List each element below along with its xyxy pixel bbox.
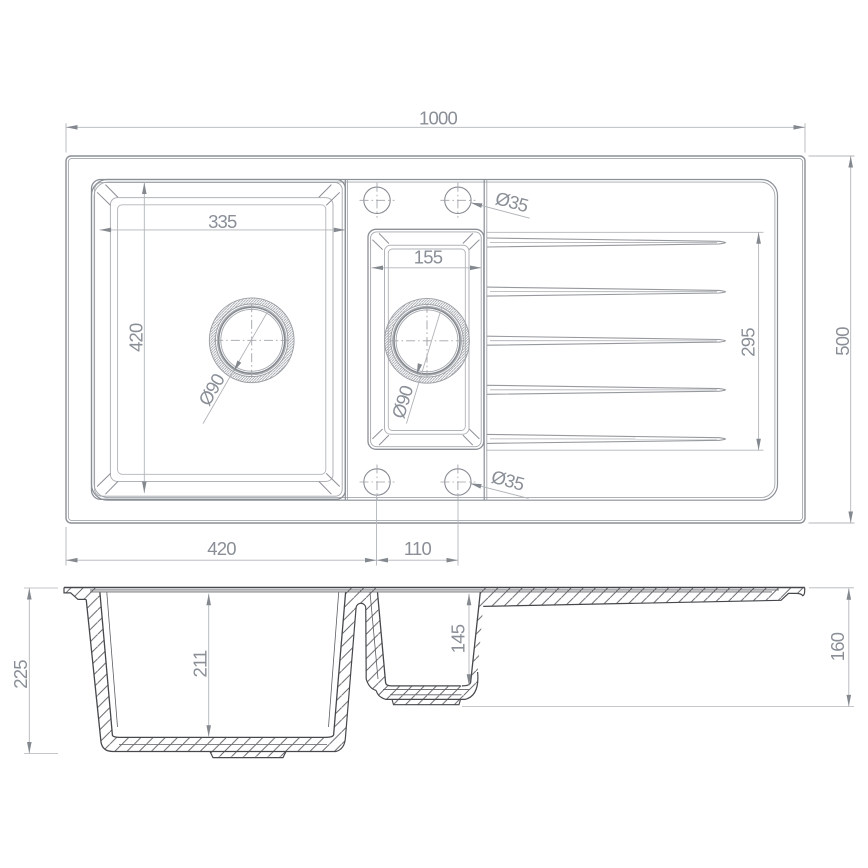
svg-text:500: 500	[832, 327, 853, 356]
svg-text:420: 420	[207, 538, 236, 559]
svg-text:225: 225	[10, 660, 31, 689]
svg-text:211: 211	[190, 650, 211, 678]
svg-text:335: 335	[208, 211, 237, 232]
svg-text:1000: 1000	[419, 108, 457, 129]
svg-text:155: 155	[414, 247, 443, 268]
svg-text:295: 295	[738, 328, 759, 357]
svg-text:160: 160	[827, 632, 848, 661]
svg-text:420: 420	[126, 323, 147, 352]
svg-text:145: 145	[448, 624, 469, 653]
svg-text:110: 110	[404, 538, 432, 559]
